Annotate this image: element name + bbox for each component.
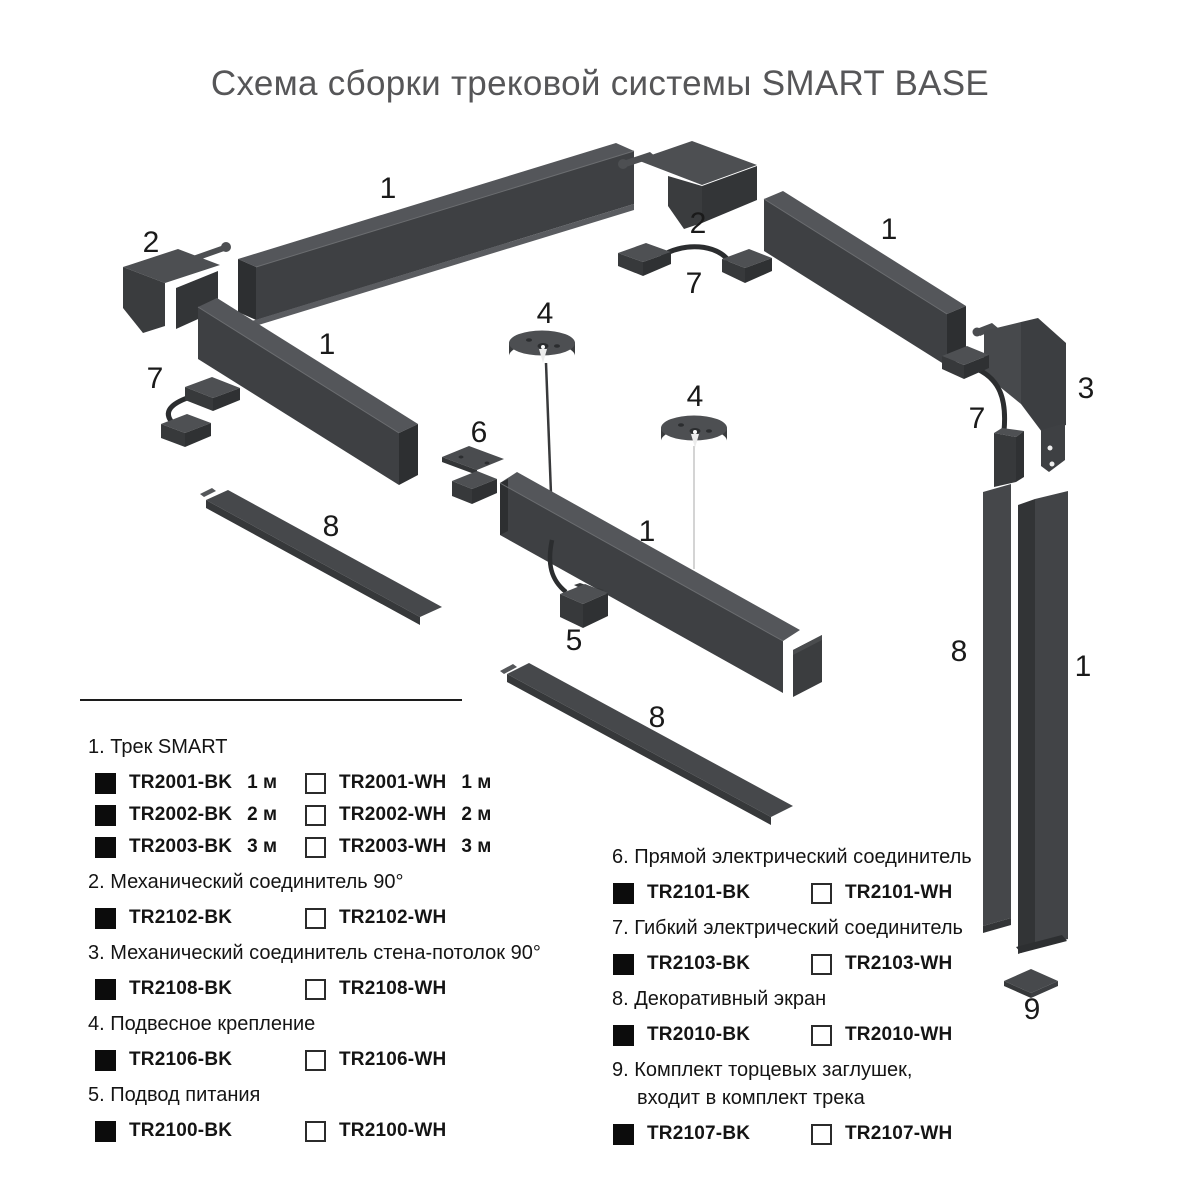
legend-row: TR2003-BK 3 м TR2003-WH 3 м xyxy=(95,836,558,858)
swatch-white xyxy=(305,805,326,826)
swatch-white xyxy=(305,908,326,929)
legend-item: TR2108-BK xyxy=(95,978,305,1000)
product-code: TR2002-BK xyxy=(129,804,232,826)
legend-section-wall-ceiling: 3. Механический соединитель стена-потоло… xyxy=(88,941,558,1000)
legend-row: TR2100-BK TR2100-WH xyxy=(95,1120,558,1142)
legend-item: TR2103-WH xyxy=(811,953,1009,975)
swatch-white xyxy=(305,979,326,1000)
product-code: TR2001-BK xyxy=(129,772,232,794)
section-title: 2. Механический соединитель 90° xyxy=(88,870,558,894)
legend-item: TR2108-WH xyxy=(305,978,515,1000)
legend-item: TR2003-BK 3 м xyxy=(95,836,305,858)
legend-item: TR2001-WH 1 м xyxy=(305,772,515,794)
swatch-white xyxy=(305,1050,326,1071)
product-code: TR2107-WH xyxy=(845,1123,952,1145)
swatch-black xyxy=(95,805,116,826)
legend-section-track: 1. Трек SMART TR2001-BK 1 м TR2001-WH 1 … xyxy=(88,735,558,858)
track-length: 1 м xyxy=(247,772,277,794)
product-code: TR2103-BK xyxy=(647,953,750,975)
end-cap-center xyxy=(793,635,822,697)
swatch-black xyxy=(613,1025,634,1046)
swatch-white xyxy=(305,837,326,858)
swatch-black xyxy=(613,1124,634,1145)
legend-row: TR2107-BK TR2107-WH xyxy=(613,1123,1082,1145)
swatch-black xyxy=(95,908,116,929)
part-label-corner-top: 2 xyxy=(690,207,707,240)
legend-divider xyxy=(80,699,462,701)
swatch-white xyxy=(305,773,326,794)
product-code: TR2100-BK xyxy=(129,1120,232,1142)
section-title: 3. Механический соединитель стена-потоло… xyxy=(88,941,558,965)
legend-section-straight-connector: 6. Прямой электрический соединитель TR21… xyxy=(612,845,1082,904)
legend-item: TR2103-BK xyxy=(613,953,811,975)
product-code: TR2101-BK xyxy=(647,882,750,904)
product-code: TR2102-WH xyxy=(339,907,446,929)
legend-item: TR2100-BK xyxy=(95,1120,305,1142)
corner-connector-2-top xyxy=(618,141,757,229)
track-1-top-left xyxy=(238,143,634,330)
product-code: TR2001-WH xyxy=(339,772,446,794)
track-length: 1 м xyxy=(461,772,491,794)
product-code: TR2102-BK xyxy=(129,907,232,929)
pendant-mount-4-right xyxy=(661,416,727,570)
section-title: 1. Трек SMART xyxy=(88,735,558,759)
section-title: 4. Подвесное крепление xyxy=(88,1012,558,1036)
part-label-pendant-left: 4 xyxy=(537,297,554,330)
legend-item: TR2102-WH xyxy=(305,907,515,929)
part-label-pendant-right: 4 xyxy=(687,380,704,413)
legend-item: TR2001-BK 1 м xyxy=(95,772,305,794)
section-title: 6. Прямой электрический соединитель xyxy=(612,845,1082,869)
legend-item: TR2100-WH xyxy=(305,1120,515,1142)
part-label-track-center: 1 xyxy=(639,515,656,548)
swatch-black xyxy=(95,979,116,1000)
legend-item: TR2107-WH xyxy=(811,1123,1009,1145)
part-label-flex-top: 7 xyxy=(686,267,703,300)
product-code: TR2010-BK xyxy=(647,1024,750,1046)
legend-item: TR2101-WH xyxy=(811,882,1009,904)
part-label-track-vertical: 1 xyxy=(1075,650,1092,683)
pendant-mount-4-left xyxy=(509,331,575,495)
legend-row: TR2103-BK TR2103-WH xyxy=(613,953,1082,975)
track-length: 3 м xyxy=(247,836,277,858)
legend-section-end-caps: 9. Комплект торцевых заглушек, входит в … xyxy=(612,1058,1082,1145)
flex-connector-7-left xyxy=(161,377,240,447)
swatch-black xyxy=(95,773,116,794)
product-code: TR2003-WH xyxy=(339,836,446,858)
legend-section-screen: 8. Декоративный экран TR2010-BK TR2010-W… xyxy=(612,987,1082,1046)
section-title: 9. Комплект торцевых заглушек, xyxy=(612,1058,1082,1082)
legend-row: TR2102-BK TR2102-WH xyxy=(95,907,558,929)
legend-item: TR2010-WH xyxy=(811,1024,1009,1046)
legend-row: TR2101-BK TR2101-WH xyxy=(613,882,1082,904)
section-title-line2: входит в комплект трека xyxy=(637,1086,1082,1110)
track-length: 3 м xyxy=(461,836,491,858)
legend-item: TR2102-BK xyxy=(95,907,305,929)
swatch-white xyxy=(811,1025,832,1046)
section-title: 5. Подвод питания xyxy=(88,1083,558,1107)
legend-section-flex-connector: 7. Гибкий электрический соединитель TR21… xyxy=(612,916,1082,975)
part-label-power-feed: 5 xyxy=(566,624,583,657)
product-code: TR2100-WH xyxy=(339,1120,446,1142)
legend-item: TR2002-WH 2 м xyxy=(305,804,515,826)
swatch-white xyxy=(811,1124,832,1145)
assembly-scheme-page: Схема сборки трековой системы SMART BASE xyxy=(0,0,1200,1200)
legend-row: TR2010-BK TR2010-WH xyxy=(613,1024,1082,1046)
straight-connector-6 xyxy=(442,446,504,504)
legend-item: TR2010-BK xyxy=(613,1024,811,1046)
legend-row: TR2106-BK TR2106-WH xyxy=(95,1049,558,1071)
legend-section-corner-90: 2. Механический соединитель 90° TR2102-B… xyxy=(88,870,558,929)
legend-item: TR2107-BK xyxy=(613,1123,811,1145)
part-label-track-left-wall: 1 xyxy=(319,328,336,361)
track-1-top-right xyxy=(764,191,966,366)
product-code: TR2106-WH xyxy=(339,1049,446,1071)
legend-row: TR2001-BK 1 м TR2001-WH 1 м xyxy=(95,772,558,794)
legend-row: TR2108-BK TR2108-WH xyxy=(95,978,558,1000)
track-length: 2 м xyxy=(461,804,491,826)
product-code: TR2106-BK xyxy=(129,1049,232,1071)
swatch-black xyxy=(95,1121,116,1142)
part-label-straight-connector: 6 xyxy=(471,416,488,449)
swatch-white xyxy=(811,883,832,904)
part-label-flex-left: 7 xyxy=(147,362,164,395)
product-code: TR2108-BK xyxy=(129,978,232,1000)
legend-item: TR2101-BK xyxy=(613,882,811,904)
legend-right-column: 6. Прямой электрический соединитель TR21… xyxy=(612,845,1082,1157)
legend-row: TR2002-BK 2 м TR2002-WH 2 м xyxy=(95,804,558,826)
product-code: TR2107-BK xyxy=(647,1123,750,1145)
legend-left-column: 1. Трек SMART TR2001-BK 1 м TR2001-WH 1 … xyxy=(88,735,558,1154)
swatch-black xyxy=(95,837,116,858)
part-label-corner-left: 2 xyxy=(143,226,160,259)
product-code: TR2103-WH xyxy=(845,953,952,975)
section-title: 7. Гибкий электрический соединитель xyxy=(612,916,1082,940)
part-label-screen-left: 8 xyxy=(323,510,340,543)
track-length: 2 м xyxy=(247,804,277,826)
swatch-white xyxy=(811,954,832,975)
legend-item: TR2003-WH 3 м xyxy=(305,836,515,858)
legend-section-power-feed: 5. Подвод питания TR2100-BK TR2100-WH xyxy=(88,1083,558,1142)
swatch-black xyxy=(613,954,634,975)
decorative-screen-8-left xyxy=(200,488,442,625)
track-1-center xyxy=(500,472,800,693)
product-code: TR2010-WH xyxy=(845,1024,952,1046)
part-label-track-top-right: 1 xyxy=(881,213,898,246)
legend-item: TR2002-BK 2 м xyxy=(95,804,305,826)
part-label-wall-ceiling: 3 xyxy=(1078,372,1095,405)
legend-item: TR2106-BK xyxy=(95,1049,305,1071)
product-code: TR2002-WH xyxy=(339,804,446,826)
part-label-screen-center: 8 xyxy=(649,701,666,734)
part-label-flex-right: 7 xyxy=(969,402,986,435)
part-label-track-top-left: 1 xyxy=(380,172,397,205)
legend-item: TR2106-WH xyxy=(305,1049,515,1071)
swatch-white xyxy=(305,1121,326,1142)
product-code: TR2101-WH xyxy=(845,882,952,904)
product-code: TR2108-WH xyxy=(339,978,446,1000)
legend-section-pendant: 4. Подвесное крепление TR2106-BK TR2106-… xyxy=(88,1012,558,1071)
product-code: TR2003-BK xyxy=(129,836,232,858)
swatch-black xyxy=(95,1050,116,1071)
part-label-screen-vertical: 8 xyxy=(951,635,968,668)
section-title: 8. Декоративный экран xyxy=(612,987,1082,1011)
swatch-black xyxy=(613,883,634,904)
